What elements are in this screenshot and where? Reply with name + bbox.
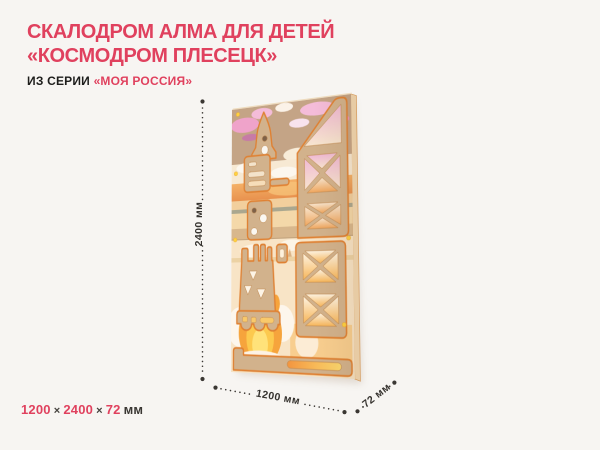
board-shading (231, 94, 355, 379)
footer-unit: мм (124, 402, 144, 417)
footer-dimensions: 1200×2400×72мм (21, 402, 143, 417)
title-line1: СКАЛОДРОМ АЛМА ДЛЯ ДЕТЕЙ (27, 20, 334, 44)
page-title: СКАЛОДРОМ АЛМА ДЛЯ ДЕТЕЙ «КОСМОДРОМ ПЛЕС… (27, 20, 334, 68)
series-name: «МОЯ РОССИЯ» (94, 74, 193, 88)
climbing-board-render (231, 94, 355, 379)
footer-height: 2400 (63, 402, 93, 417)
height-dimension-label: 2400 мм (193, 202, 205, 247)
depth-dimension-label: 72 мм (360, 381, 393, 410)
header: СКАЛОДРОМ АЛМА ДЛЯ ДЕТЕЙ «КОСМОДРОМ ПЛЕС… (27, 20, 334, 88)
width-dimension: 1200 мм (213, 386, 346, 415)
series-subtitle: ИЗ СЕРИИ «МОЯ РОССИЯ» (27, 74, 334, 88)
footer-sep1: × (54, 405, 61, 417)
footer-depth: 72 (106, 402, 121, 417)
footer-width: 1200 (21, 402, 51, 417)
product-slide: СКАЛОДРОМ АЛМА ДЛЯ ДЕТЕЙ «КОСМОДРОМ ПЛЕС… (0, 0, 600, 450)
board-artwork (231, 94, 355, 379)
depth-dimension: 72 мм (355, 381, 396, 414)
series-prefix: ИЗ СЕРИИ (27, 74, 90, 88)
title-line2: «КОСМОДРОМ ПЛЕСЕЦК» (27, 44, 334, 68)
width-dimension-label: 1200 мм (255, 387, 301, 407)
height-dimension: 2400 мм (193, 99, 205, 381)
footer-sep2: × (96, 405, 103, 417)
